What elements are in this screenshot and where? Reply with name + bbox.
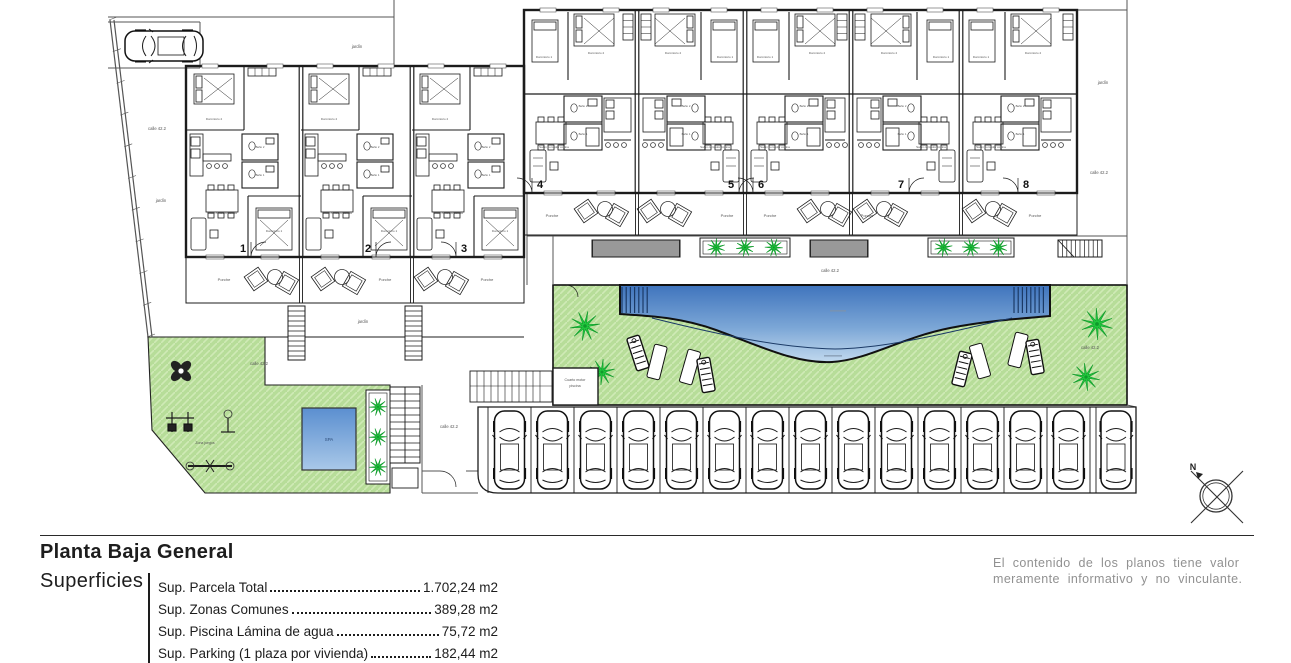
plan-label: Dormitorio 1 (933, 55, 950, 59)
apartment-unit: Dormitorio 1Dormitorio 2Baño 2Baño 1Saló… (961, 8, 1077, 195)
plan-label: jardín (351, 44, 363, 49)
unit-number: 8 (1023, 179, 1029, 191)
plan-label: Porche (764, 213, 777, 218)
plan-label: Salón comedor cocina (433, 211, 463, 215)
car-icon (923, 411, 957, 489)
porch-strip (186, 257, 524, 303)
superficies-item-label: Sup. Parking (1 plaza por vivienda) (158, 646, 368, 661)
apartment-unit: Dormitorio 1Dormitorio 2Baño 2Baño 1Saló… (745, 8, 851, 195)
porch-furniture (311, 267, 365, 294)
dot-leader (292, 612, 432, 614)
window (653, 8, 669, 12)
plan-label: Baño 1 (1016, 132, 1025, 136)
plan-label: Dormitorio 1 (717, 55, 734, 59)
dot-leader (270, 590, 420, 592)
superficies-item-value: 1.702,24 m2 (423, 580, 498, 595)
plan-label: calle 42.2 (821, 268, 840, 273)
superficies-row: Sup. Parcela Total1.702,24 m2 (158, 573, 498, 595)
plan-label: Baño 2 (898, 104, 907, 108)
plan-label: Salón comedor cocina (207, 211, 237, 215)
plan-label: Dormitorio 1 (757, 55, 774, 59)
car-icon (880, 411, 914, 489)
plan-label: jardín (357, 319, 369, 324)
window (817, 8, 833, 12)
window (867, 8, 883, 12)
plan-label: Dormitorio 2 (1025, 51, 1042, 55)
plan-label: Baño 1 (800, 132, 809, 136)
plan-label: Baño 1 (256, 173, 265, 177)
bike-rack (470, 371, 552, 402)
window (202, 64, 218, 68)
page-title: Planta Baja General (40, 541, 234, 564)
site-plan-sheet: { "title_block": { "title": "Planta Baja… (0, 0, 1291, 650)
window (490, 64, 506, 68)
dot-leader (337, 634, 439, 636)
planter (928, 238, 1014, 257)
stairs (288, 306, 305, 360)
window (711, 8, 727, 12)
dot-leader (371, 656, 431, 658)
plan-label: Salón comedor cocina (539, 145, 569, 149)
plan-label: calle 42.2 (440, 424, 459, 429)
porch-furniture (574, 199, 628, 226)
superficies-row: Sup. Parking (1 plaza por vivienda)182,4… (158, 639, 498, 661)
plan-label: calle 42.2 (1090, 170, 1109, 175)
unit-number: 3 (461, 243, 467, 255)
window (761, 8, 777, 12)
superficies-item-label: Sup. Parcela Total (158, 580, 267, 595)
compass-rose: N (1190, 462, 1243, 523)
plan-label: Dormitorio 2 (588, 51, 605, 55)
spa-label: SPA (325, 437, 334, 442)
unit-number: 5 (728, 179, 734, 191)
unit-number: 6 (758, 179, 764, 191)
porch-furniture (797, 199, 851, 226)
plan-label: Dormitorio 1 (536, 55, 553, 59)
car-icon (794, 411, 828, 489)
plan-label: jardín (1097, 80, 1109, 85)
porch-furniture (637, 199, 691, 226)
car-icon (751, 411, 785, 489)
plan-label: Baño 2 (800, 104, 809, 108)
car-icon (536, 411, 570, 489)
car-icon (966, 411, 1000, 489)
stairs (405, 306, 422, 360)
plan-label: calle 42.2 (250, 361, 269, 366)
superficies-item-value: 182,44 m2 (434, 646, 498, 661)
plan-label: Zona juegos (195, 441, 215, 445)
window (977, 8, 993, 12)
floor-plan-drawing: Cuarto motorpiscina Dormitorio 1Dormitor… (0, 0, 1291, 537)
compass-arrow (1196, 472, 1203, 479)
apartment-unit: Dormitorio 2Dormitorio 1Baño 2Baño 1Saló… (412, 64, 524, 259)
plan-label: Baño 2 (371, 145, 380, 149)
plan-label: Baño 1 (371, 173, 380, 177)
plan-label: Baño 2 (579, 104, 588, 108)
porch-furniture (962, 199, 1016, 226)
porch-furniture (244, 267, 298, 294)
plan-label: Baño 1 (898, 132, 907, 136)
car-icon (1052, 411, 1086, 489)
plan-label: Salón comedor cocina (760, 145, 790, 149)
plan-label: Dormitorio 2 (665, 51, 682, 55)
plan-label: Dormitorio 2 (206, 117, 223, 121)
car-icon (665, 411, 699, 489)
apartment-unit: Dormitorio 2Dormitorio 1Baño 2Baño 1Saló… (301, 64, 412, 259)
superficies-row: Sup. Zonas Comunes389,28 m2 (158, 595, 498, 617)
disclaimer-note: El contenido de los planos tiene valor m… (993, 556, 1263, 587)
superficies-item-label: Sup. Zonas Comunes (158, 602, 289, 617)
plan-label: Dormitorio 2 (881, 51, 898, 55)
plan-label: Porche (721, 213, 734, 218)
plan-label: Cuarto motor (565, 378, 587, 382)
titleblock-divider (40, 535, 1254, 536)
superficies-label: Superficies (40, 570, 143, 593)
car-icon (622, 411, 656, 489)
plan-label: Salón comedor cocina (322, 211, 352, 215)
planter (700, 238, 790, 257)
storage-room (392, 468, 418, 488)
unit-number: 1 (240, 243, 246, 255)
window (428, 64, 444, 68)
unit-number: 4 (537, 179, 544, 191)
window (378, 64, 394, 68)
plan-label: Baño 1 (579, 132, 588, 136)
plan-label: Baño 2 (482, 145, 491, 149)
superficies-list: Sup. Parcela Total1.702,24 m2Sup. Zonas … (158, 573, 498, 661)
plan-label: Porche (1029, 213, 1042, 218)
walkway-grate (810, 240, 868, 257)
plan-label: Porche (218, 277, 231, 282)
car-icon (708, 411, 742, 489)
window (267, 64, 283, 68)
plan-label: Baño 2 (256, 145, 265, 149)
plan-label: piscina (569, 384, 580, 388)
plan-label: Porche (481, 277, 494, 282)
door-arc (1003, 178, 1018, 193)
walkway-grate (592, 240, 680, 257)
plan-label: Salón comedor cocina (976, 145, 1006, 149)
apartment-unit: Dormitorio 1Dormitorio 2Baño 2Baño 1Saló… (637, 8, 745, 195)
plan-label: Dormitorio 1 (973, 55, 990, 59)
car-icon (837, 411, 871, 489)
plan-label: Dormitorio 2 (809, 51, 826, 55)
plan-label: calle 42.2 (1081, 345, 1100, 350)
superficies-item-value: 389,28 m2 (434, 602, 498, 617)
car-icon (579, 411, 613, 489)
porch-furniture (414, 267, 468, 294)
car-icon (125, 29, 203, 63)
plan-label: Dormitorio 2 (432, 117, 449, 121)
superficies-item-label: Sup. Piscina Lámina de agua (158, 624, 334, 639)
window (927, 8, 943, 12)
car-icon (1009, 411, 1043, 489)
plan-label: Baño 1 (482, 173, 491, 177)
plan-label: Dormitorio 1 (381, 229, 398, 233)
plan-label: calle 42.2 (148, 126, 167, 131)
plan-label: Dormitorio 2 (321, 117, 338, 121)
superficies-row: Sup. Piscina Lámina de agua75,72 m2 (158, 617, 498, 639)
plan-label: Porche (861, 213, 874, 218)
disclaimer-line-2: meramente informativo y no vinculante. (993, 572, 1263, 588)
unit-number: 2 (365, 243, 371, 255)
plan-label: Baño 1 (682, 132, 691, 136)
plan-label: Dormitorio 1 (266, 229, 283, 233)
apartment-unit: Dormitorio 2Dormitorio 1Baño 2Baño 1Saló… (186, 64, 301, 259)
building-block-top (524, 10, 1077, 193)
window (540, 8, 556, 12)
unit-number: 7 (898, 179, 904, 191)
apartment-unit: Dormitorio 1Dormitorio 2Baño 2Baño 1Saló… (851, 8, 961, 195)
stairs (1058, 240, 1102, 257)
plan-label: jardín (155, 198, 167, 203)
window (317, 64, 333, 68)
plan-label: Salón comedor cocina (700, 145, 730, 149)
window (1043, 8, 1059, 12)
plan-label: Baño 2 (682, 104, 691, 108)
plan-label: Porche (379, 277, 392, 282)
window (603, 8, 619, 12)
plan-label: Baño 2 (1016, 104, 1025, 108)
compass-north-label: N (1190, 462, 1197, 472)
plan-label: Porche (546, 213, 559, 218)
disclaimer-line-1: El contenido de los planos tiene valor (993, 556, 1263, 572)
superficies-item-value: 75,72 m2 (442, 624, 498, 639)
door-arc (440, 471, 456, 487)
plan-label: Salón comedor cocina (916, 145, 946, 149)
car-icon (1099, 411, 1133, 489)
planter (366, 390, 390, 484)
apartment-unit: Dormitorio 1Dormitorio 2Baño 2Baño 1Saló… (524, 8, 637, 195)
plan-label: Dormitorio 1 (492, 229, 509, 233)
car-icon (493, 411, 527, 489)
